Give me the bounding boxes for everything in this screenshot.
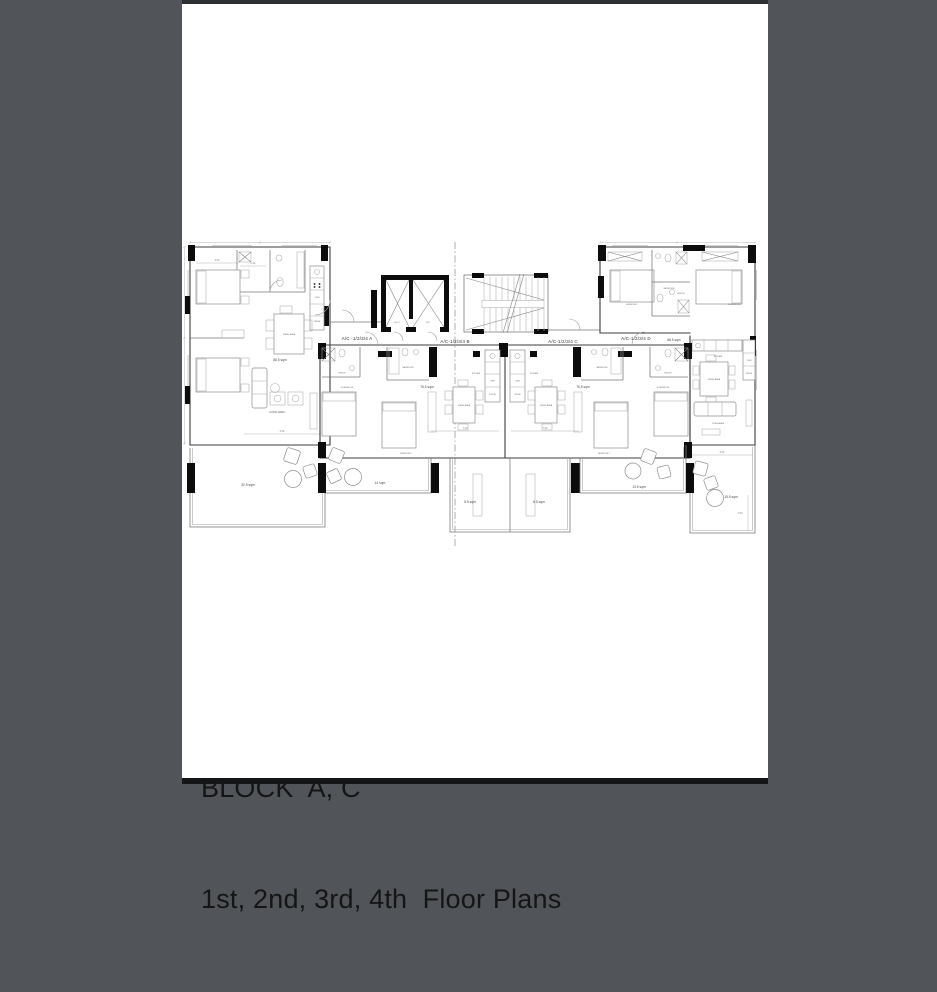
viewer-background: { "page": { "background_color": "#515458… — [0, 0, 937, 784]
room-label-bedroom2: BEDROOM 2 — [400, 453, 411, 455]
room-label-ensuite: ENSUITE — [664, 373, 672, 375]
dining-table: DINING AREA — [266, 306, 312, 354]
bed — [196, 270, 249, 304]
room-label-kitchen: KITCHEN — [530, 373, 539, 375]
room-label-dining: DINING AREA — [458, 404, 471, 407]
balcony-d-area: 13.5 sqm — [632, 485, 646, 489]
unit-c-area: 76.5 sqm — [576, 385, 590, 389]
dim-label: 3.50 — [215, 259, 220, 262]
bed — [696, 252, 742, 304]
room-label-bathroom: BATHROOM — [664, 287, 675, 290]
unit-c: OVEN FRIDGE KITCHEN DINING AREA BATHROOM — [510, 343, 692, 458]
room-label-ensuite: ENSUITE — [338, 373, 346, 375]
room-label-m-bedroom: M. BEDROOM — [341, 387, 354, 389]
unit-a: OVEN FRIDGE DINING AREA 88.5 sqm — [185, 245, 330, 445]
title-block-line1: BLOCK A, C — [201, 770, 561, 807]
dim-label: 7.20 — [543, 427, 548, 430]
unit-c-label: A/C-1/2/3/4 C — [548, 339, 578, 344]
room-label-lift: LIFT — [426, 322, 431, 324]
staircase — [464, 273, 548, 334]
room-label-bedroom2: BEDROOM 2 — [626, 304, 637, 306]
room-label-fridge: FRIDGE — [746, 373, 753, 375]
room-label-m-bedroom: M. BEDROOM — [728, 304, 741, 306]
room-label-fridge: FRIDGE — [314, 321, 321, 323]
unit-b-area: 76.5 sqm — [420, 385, 434, 389]
unit-b-label: A/C-1/2/3/4 B — [440, 339, 470, 344]
lounge-chairs — [693, 461, 724, 507]
room-label-duct: DUCT — [394, 322, 400, 324]
room-label-dining: DINING AREA — [283, 333, 296, 336]
balcony-d: 13.5 sqm — [580, 445, 694, 493]
floor-plan-drawing: 3.50 1.40 7.20 7.20 4.90 4.00 2.50 — [182, 240, 768, 552]
bed — [654, 392, 688, 436]
bed — [574, 392, 628, 448]
dim-label: 4.90 — [280, 430, 285, 433]
dim-label: 7.20 — [463, 427, 468, 430]
kitchen-counter: OVEN FRIDGE — [485, 350, 500, 402]
room-label-bathroom: BATHROOM — [403, 366, 414, 369]
lounge-chairs — [625, 448, 671, 479]
room-label-kitchen: KITCHEN — [472, 373, 481, 375]
unit-d-label: A/C-1/2/3/4 D — [621, 336, 651, 341]
title-block-line2: 1st, 2nd, 3rd, 4th Floor Plans — [201, 881, 561, 918]
dim-label: 1.40 — [251, 262, 256, 265]
room-label-oven: OVEN — [515, 381, 521, 383]
sofa — [252, 368, 317, 429]
balcony-b-area: 14 sqm — [375, 481, 386, 485]
lift-shaft: LIFT — [413, 280, 444, 327]
terrace-a: 32.5 sqm 14 sqm — [187, 447, 439, 527]
unit-b: ENSUITE BATHROOM M. BEDROOM BEDROOM 2 — [318, 343, 508, 458]
room-label-oven: OVEN — [315, 297, 321, 299]
room-label-fridge: FRIDGE — [514, 394, 521, 396]
bed — [382, 392, 436, 448]
closet — [222, 330, 244, 338]
bathroom-fixtures — [652, 250, 690, 316]
balconies-center: 8.5 sqm 8.5 sqm — [450, 458, 580, 532]
room-label-oven: OVEN — [747, 360, 753, 362]
room-label-oven: OVEN — [490, 381, 496, 383]
document-page: 3.50 1.40 7.20 7.20 4.90 4.00 2.50 — [182, 0, 768, 784]
dining-table: DINING AREA — [445, 380, 483, 430]
bed — [196, 358, 249, 392]
room-label-bathroom: BATHROOM — [597, 366, 608, 369]
unit-a-label: A/C -1/2/3/4 A — [342, 336, 373, 341]
room-label-fridge: FRIDGE — [489, 394, 496, 396]
room-label-ensuite: ENSUITE — [677, 293, 685, 295]
dining-table: DINING AREA — [693, 355, 735, 403]
unit-a-area: 88.5 sqm — [273, 358, 287, 362]
room-label-kitchen: KITCHEN — [714, 356, 723, 358]
duct-shaft: DUCT — [386, 280, 409, 327]
bed — [322, 392, 356, 436]
terrace-d: 15.5 sqm — [690, 445, 755, 533]
bed — [608, 252, 654, 302]
dim-label: 4.00 — [720, 451, 725, 454]
title-block: BLOCK A, C 1st, 2nd, 3rd, 4th Floor Plan… — [201, 696, 561, 992]
dimension-lines: 3.50 1.40 7.20 7.20 4.90 4.00 2.50 — [183, 241, 756, 531]
dim-label: 2.50 — [738, 512, 743, 515]
sofa — [694, 400, 752, 435]
room-label-dining: DINING AREA — [708, 378, 721, 381]
balcony-c-left-area: 8.5 sqm — [464, 500, 476, 504]
dining-table: DINING AREA — [528, 380, 565, 430]
room-label-dining: DINING AREA — [540, 404, 553, 407]
corridor — [330, 290, 600, 330]
room-label-living: LIVING AREA — [712, 422, 725, 425]
room-label-living: LIVING AREA — [269, 411, 285, 414]
terrace-a-area: 32.5 sqm — [241, 483, 255, 487]
room-label-m-bedroom: M. BEDROOM — [657, 387, 670, 389]
lift-core: DUCT LIFT — [381, 275, 449, 341]
kitchen-counter: OVEN FRIDGE — [510, 350, 525, 402]
unit-d-area: 88.5 sqm — [667, 338, 681, 342]
room-label-bedroom2: BEDROOM 2 — [598, 453, 609, 455]
basins — [270, 392, 303, 405]
terrace-d-area: 15.5 sqm — [724, 495, 738, 499]
balcony-c-right-area: 8.5 sqm — [533, 500, 545, 504]
